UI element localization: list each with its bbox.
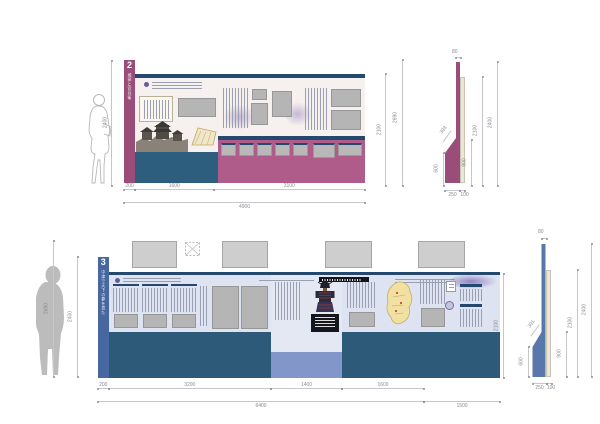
kyushu-map: [383, 280, 416, 328]
dim-label-p2-base: 600: [435, 157, 440, 181]
text-panel: [142, 284, 168, 330]
dim-e2-3100: 3100: [214, 189, 366, 190]
dim-label: 100: [452, 193, 477, 198]
ceiling-panel: [222, 241, 268, 268]
text-column-placeholder: [347, 282, 377, 308]
dim-e3-1600: 1600: [342, 388, 424, 389]
text-column-placeholder: [171, 288, 197, 312]
crest-placeholder: [449, 284, 454, 290]
dim-label-e2-right-outer: 2690: [394, 106, 399, 130]
dim-line-p2-base: [443, 153, 444, 186]
panel3-number: 3: [98, 258, 109, 267]
human-figure-outline: [82, 92, 118, 187]
document-text-placeholder: [144, 100, 169, 119]
pedestal-text-placeholder: [315, 317, 335, 329]
dim-line-p2-total: [497, 62, 498, 186]
dim-label-e2-right-inner: 2100: [378, 118, 383, 142]
dim-label: 1500: [412, 404, 512, 409]
ceiling-panel: [418, 241, 465, 268]
text-panel-header: [460, 304, 482, 307]
panel2-header-text-placeholder: [152, 82, 202, 89]
panel2-vertical-title: 城郭と官兵衛: [128, 73, 132, 100]
dim-label: 4900: [112, 205, 377, 210]
dim-e3-200: 200: [98, 388, 109, 389]
dim-e2-4900: 4900: [124, 202, 365, 203]
thumbnail: [275, 143, 290, 156]
dim-label-e3-right: 2100: [495, 314, 500, 338]
dim-line-p3-backing: [577, 270, 578, 377]
dim-label: 3200: [97, 383, 284, 388]
image-placeholder: [331, 89, 361, 107]
crest-box: [446, 281, 456, 292]
dim-label: 6400: [86, 404, 436, 409]
dim-p3-250: 250: [533, 383, 547, 384]
image-placeholder: [252, 89, 267, 100]
text-panel-header: [142, 284, 168, 286]
text-column-placeholder: [142, 288, 168, 312]
armor-pedestal: [311, 314, 339, 332]
text-column-placeholder: [305, 88, 327, 130]
text-panel: [420, 280, 446, 330]
image-placeholder: [143, 314, 167, 328]
thumbnail: [313, 143, 335, 158]
dim-p3-80-line: [542, 238, 547, 239]
panel2-band: 2 城郭と官兵衛: [124, 60, 135, 183]
dim-line-p2-mid: [471, 140, 472, 186]
dim-label: 100: [539, 386, 564, 391]
text-panel: [171, 284, 197, 330]
dim-label-e3-left-outer: 2690: [45, 297, 50, 321]
text-column-placeholder: [223, 88, 249, 128]
dim-label-p2-mid: 900: [463, 151, 468, 175]
panel3-top-band: [109, 272, 501, 275]
text-panel: [347, 282, 377, 328]
ceiling-panel: [132, 241, 177, 268]
dim-label-p3-total: 2400: [583, 298, 588, 322]
fan-diagram: [189, 122, 219, 148]
panel3-teal-base-left: [109, 332, 272, 378]
dim-e3-6400: 6400: [98, 401, 424, 402]
text-column-placeholder: [420, 280, 446, 304]
text-panel-header: [171, 284, 197, 286]
thumbnail: [221, 143, 236, 156]
dim-line-e2-left: [111, 61, 112, 186]
samurai-armor: [313, 280, 337, 314]
dim-label-p2-top: 80: [452, 50, 458, 55]
dim-label-p3-backing: 2100: [569, 311, 574, 335]
image-placeholder: [421, 308, 445, 327]
castle-photo: [136, 118, 188, 152]
dim-label: 1600: [330, 383, 436, 388]
thumbnail: [338, 143, 362, 156]
dim-line-p2-backing: [482, 77, 483, 186]
panel3-band: 3 中津で天下の夢を見た: [98, 257, 109, 378]
text-panel: [113, 284, 139, 330]
crossed-square-icon: [185, 242, 200, 256]
dim-e3-1400: 1400: [271, 388, 342, 389]
dim-label-p3-base: 600: [520, 350, 525, 374]
logo-icon: [144, 82, 149, 87]
text-column-placeholder: [460, 309, 482, 327]
dim-label-p2-backing: 2100: [474, 119, 479, 143]
image-placeholder: [172, 314, 196, 328]
dim-line-e2-right-outer: [402, 60, 403, 186]
dim-line-e3-left-outer: [53, 241, 54, 377]
thumbnail: [257, 143, 272, 156]
text-column-placeholder: [460, 289, 482, 301]
dim-p2-80-line: [456, 57, 461, 58]
image-placeholder: [272, 91, 292, 117]
panel2-number: 2: [124, 61, 135, 70]
text-panel-header: [113, 284, 139, 286]
image-placeholder: [178, 98, 216, 117]
panel2-teal-base: [135, 152, 218, 183]
dim-e3-3200: 3200: [109, 388, 272, 389]
image-placeholder: [349, 312, 375, 327]
text-column-placeholder: [200, 286, 209, 326]
text-column-placeholder: [113, 288, 139, 312]
image-placeholder: [331, 110, 361, 130]
panel2-top-band: [135, 74, 365, 78]
dim-line-e3-left-inner: [77, 257, 78, 377]
thumbnail: [293, 143, 308, 156]
large-image-placeholder: [212, 286, 239, 329]
dim-e2-1600: 1600: [135, 189, 214, 190]
round-stamp-icon: [445, 301, 454, 310]
ceiling-panel: [325, 241, 372, 268]
dim-p2-250: 250: [445, 190, 460, 191]
dim-label: 3100: [202, 184, 378, 189]
exhibition-elevation-sheet: 2400 2 城郭と官兵衛: [0, 0, 600, 424]
dim-label-p3-mid: 900: [558, 342, 563, 366]
logo-icon: [115, 278, 120, 283]
dim-label-p3-top: 80: [538, 230, 544, 235]
dim-line-p3-mid: [566, 332, 567, 377]
text-panel: [460, 284, 482, 328]
dim-line-e3-right: [503, 274, 504, 378]
large-image-placeholder: [241, 286, 268, 329]
dim-line-p3-base: [528, 347, 529, 377]
dim-e3-1500: 1500: [424, 401, 500, 402]
dim-line-p3-total: [591, 244, 592, 377]
dim-label-e2-left-height: 2400: [104, 111, 109, 135]
panel2-body: [135, 74, 365, 183]
text-panel-header: [460, 284, 482, 287]
map-image-placeholder: [251, 103, 268, 125]
panel3-lightblue-base: [271, 352, 342, 378]
dim-line-e2-right-inner: [385, 74, 386, 186]
panel3-vertical-title: 中津で天下の夢を見た: [101, 270, 105, 315]
panel3-body: [109, 272, 501, 378]
thumbnail: [239, 143, 254, 156]
panel3-teal-base-right: [342, 332, 500, 378]
dim-p2-100: 100: [460, 190, 465, 191]
dim-p3-100: 100: [547, 383, 552, 384]
profile3-shape: [529, 242, 551, 378]
dim-label-e3-left-inner: 2400: [69, 305, 74, 329]
image-placeholder: [114, 314, 138, 328]
text-column-placeholder: [275, 282, 301, 320]
dim-label-p2-total: 2400: [489, 111, 494, 135]
